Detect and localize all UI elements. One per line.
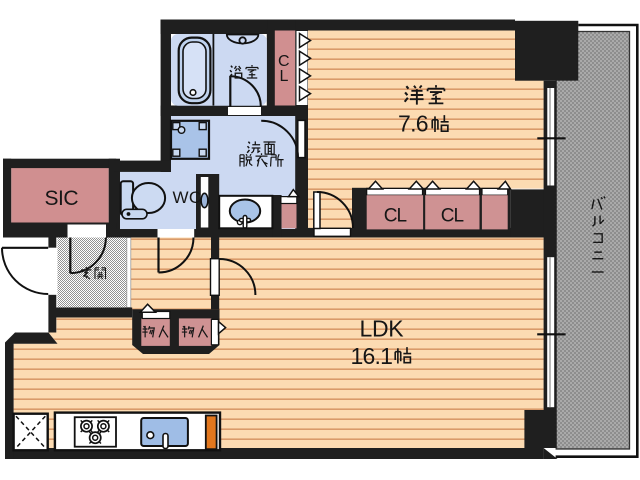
svg-text:L: L (280, 68, 289, 85)
svg-text:16.1: 16.1 (351, 343, 393, 369)
svg-text:WC: WC (173, 188, 202, 207)
svg-text:LDK: LDK (360, 316, 405, 342)
svg-text:7.6: 7.6 (398, 111, 428, 137)
svg-text:SIC: SIC (45, 187, 79, 210)
svg-text:CL: CL (384, 206, 407, 227)
svg-text:CL: CL (441, 206, 464, 227)
